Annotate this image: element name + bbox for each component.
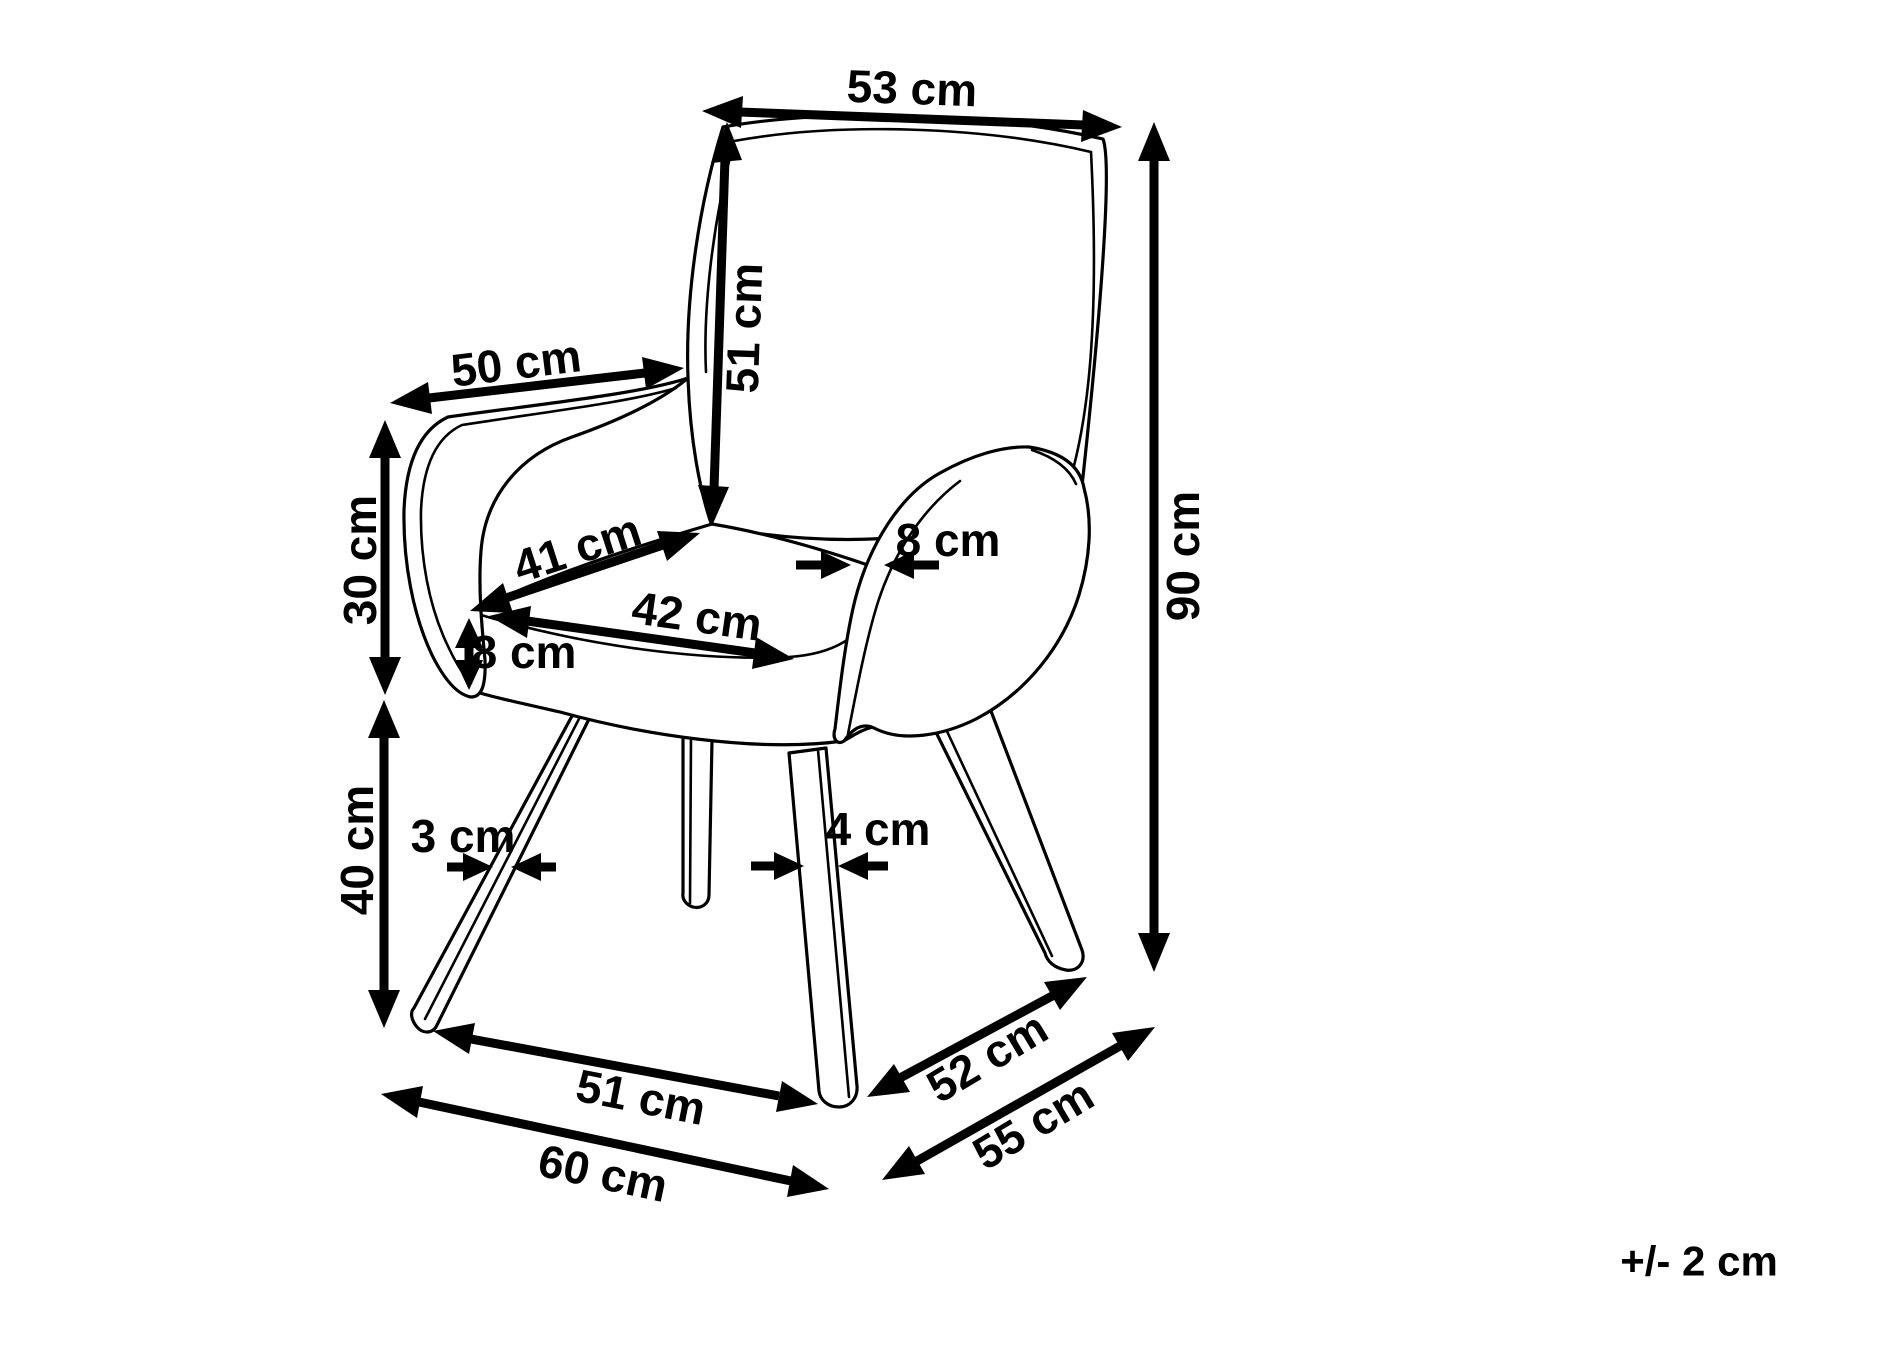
label-max-base-width: 60 cm [534, 1134, 672, 1212]
tolerance-note: +/- 2 cm [1620, 1238, 1778, 1285]
front-left-leg [412, 709, 594, 1032]
label-armrest-side-height: 30 cm [334, 495, 386, 625]
label-armrest-thickness: 8 cm [896, 514, 1001, 566]
rear-left-leg [683, 735, 712, 907]
rear-left-leg-seam [690, 737, 691, 903]
label-front-base-width: 51 cm [572, 1059, 710, 1135]
label-leg-height: 40 cm [331, 785, 383, 915]
label-backrest-top-width: 53 cm [846, 60, 978, 117]
dimension-diagram-canvas: 53 cm 51 cm 50 cm 30 cm 41 cm 42 cm 8 cm… [0, 0, 1888, 1351]
label-total-height: 90 cm [1157, 491, 1209, 621]
label-seat-cushion-thickness: 8 cm [472, 626, 577, 678]
label-left-leg-thickness: 3 cm [411, 810, 516, 862]
label-right-leg-thickness: 4 cm [826, 803, 931, 855]
label-backrest-height: 51 cm [716, 262, 773, 394]
chair-dimension-diagram: 53 cm 51 cm 50 cm 30 cm 41 cm 42 cm 8 cm… [0, 0, 1888, 1351]
